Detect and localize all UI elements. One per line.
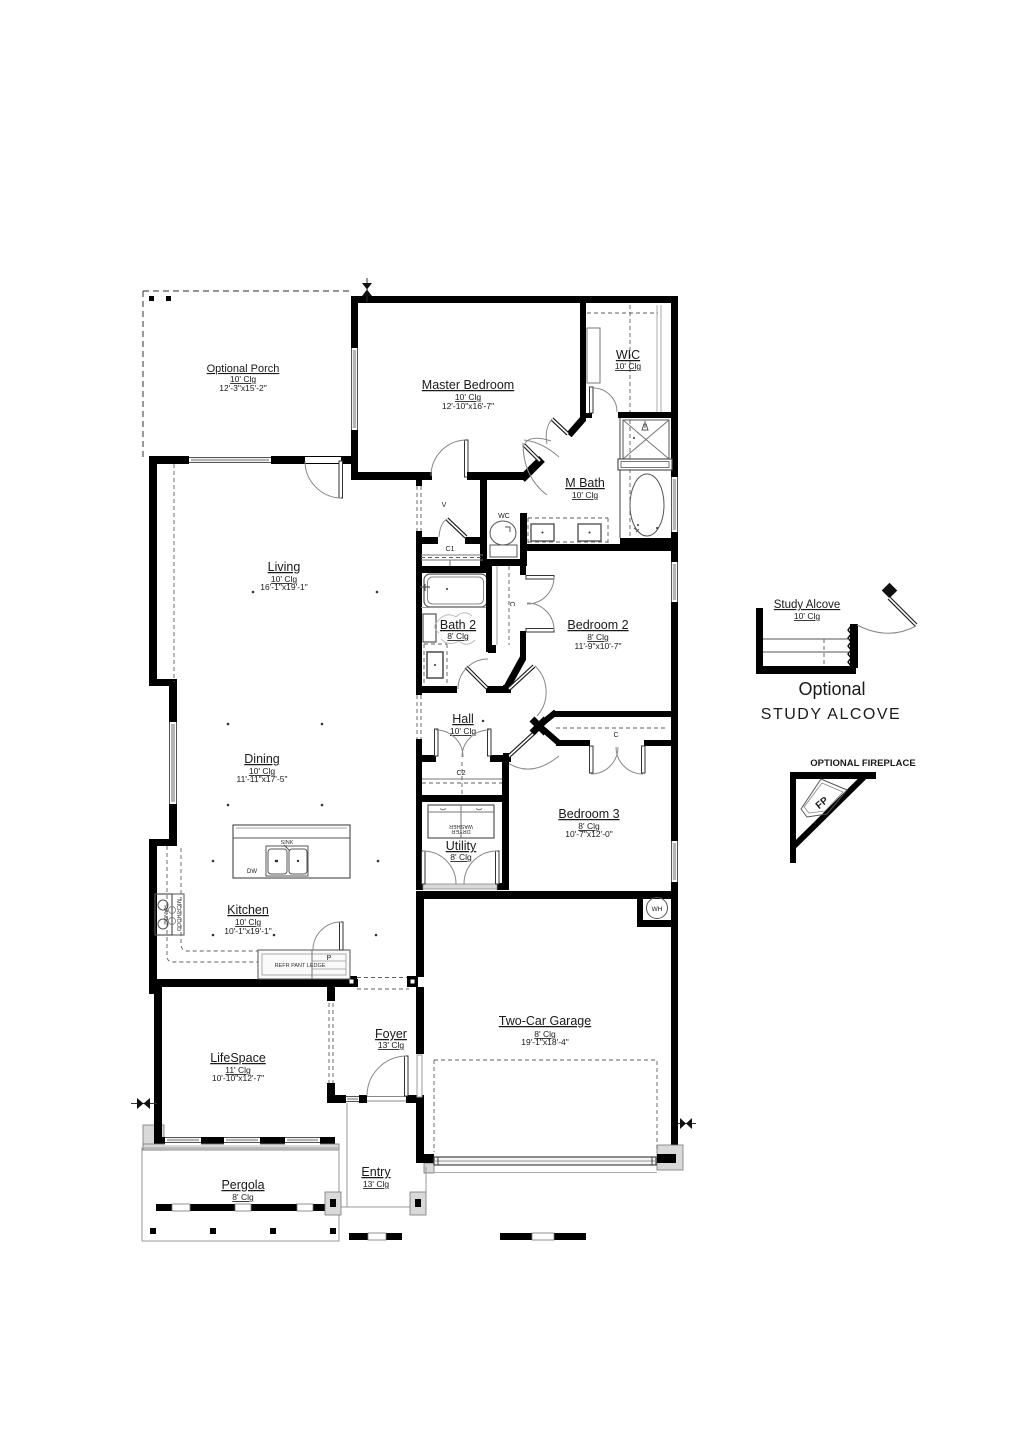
svg-text:MICR/HOOD: MICR/HOOD <box>175 899 181 931</box>
svg-text:Foyer: Foyer <box>375 1027 407 1041</box>
svg-text:Two-Car Garage: Two-Car Garage <box>499 1014 591 1028</box>
svg-text:WIC: WIC <box>616 348 640 362</box>
svg-text:DW: DW <box>247 869 257 875</box>
svg-text:C2: C2 <box>457 770 466 777</box>
svg-text:Optional: Optional <box>798 679 865 699</box>
svg-text:12'-10"x16'-7": 12'-10"x16'-7" <box>442 401 494 411</box>
svg-text:Hall: Hall <box>452 712 474 726</box>
svg-text:Kitchen: Kitchen <box>227 903 269 917</box>
svg-text:10' Clg: 10' Clg <box>794 611 820 621</box>
svg-text:STUDY ALCOVE: STUDY ALCOVE <box>761 706 901 723</box>
svg-text:Utility: Utility <box>446 839 477 853</box>
svg-text:RANGE: RANGE <box>162 905 168 925</box>
svg-text:10'-10"x12'-7": 10'-10"x12'-7" <box>212 1073 264 1083</box>
svg-text:OPTIONAL FIREPLACE: OPTIONAL FIREPLACE <box>810 758 915 769</box>
svg-text:10' Clg: 10' Clg <box>572 490 598 500</box>
svg-text:19'-1"x18'-4": 19'-1"x18'-4" <box>521 1037 569 1047</box>
svg-text:13' Clg: 13' Clg <box>363 1179 389 1189</box>
svg-text:P: P <box>327 955 332 962</box>
svg-text:V: V <box>442 502 447 509</box>
svg-text:8' Clg: 8' Clg <box>232 1192 254 1202</box>
svg-text:LifeSpace: LifeSpace <box>210 1051 266 1065</box>
svg-text:WC: WC <box>498 513 510 520</box>
svg-text:Bath 2: Bath 2 <box>440 618 476 632</box>
svg-text:REFR PANT LEDGE: REFR PANT LEDGE <box>275 963 326 969</box>
svg-text:10' Clg: 10' Clg <box>615 361 641 371</box>
svg-text:12'-3"x15'-2": 12'-3"x15'-2" <box>219 383 267 393</box>
svg-text:11'-9"x10'-7": 11'-9"x10'-7" <box>575 641 622 651</box>
svg-text:Dining: Dining <box>244 752 279 766</box>
svg-text:10'-7"x12'-0": 10'-7"x12'-0" <box>565 829 613 839</box>
svg-text:C: C <box>508 601 515 606</box>
svg-text:Master Bedroom: Master Bedroom <box>422 378 514 392</box>
svg-text:Bedroom 3: Bedroom 3 <box>558 807 619 821</box>
svg-text:Living: Living <box>268 560 301 574</box>
svg-text:Study Alcove: Study Alcove <box>774 599 840 611</box>
svg-text:Bedroom 2: Bedroom 2 <box>567 618 628 632</box>
svg-text:C1: C1 <box>446 546 455 553</box>
svg-text:11'-11"x17'-5": 11'-11"x17'-5" <box>236 774 287 784</box>
svg-text:Entry: Entry <box>361 1165 391 1179</box>
svg-text:Pergola: Pergola <box>221 1178 264 1192</box>
svg-text:WH: WH <box>652 906 663 913</box>
svg-text:M Bath: M Bath <box>565 476 605 490</box>
svg-text:10'-1"x19'-1": 10'-1"x19'-1" <box>224 926 272 936</box>
svg-text:C: C <box>613 732 618 739</box>
svg-text:16'-1"x19'-1": 16'-1"x19'-1" <box>260 582 308 592</box>
svg-text:13' Clg: 13' Clg <box>378 1040 404 1050</box>
svg-text:8' Clg: 8' Clg <box>447 631 469 641</box>
svg-text:8' Clg: 8' Clg <box>450 852 472 862</box>
svg-text:SINK: SINK <box>281 840 294 846</box>
svg-text:10' Clg: 10' Clg <box>450 726 476 736</box>
svg-text:DRYER: DRYER <box>451 828 470 834</box>
